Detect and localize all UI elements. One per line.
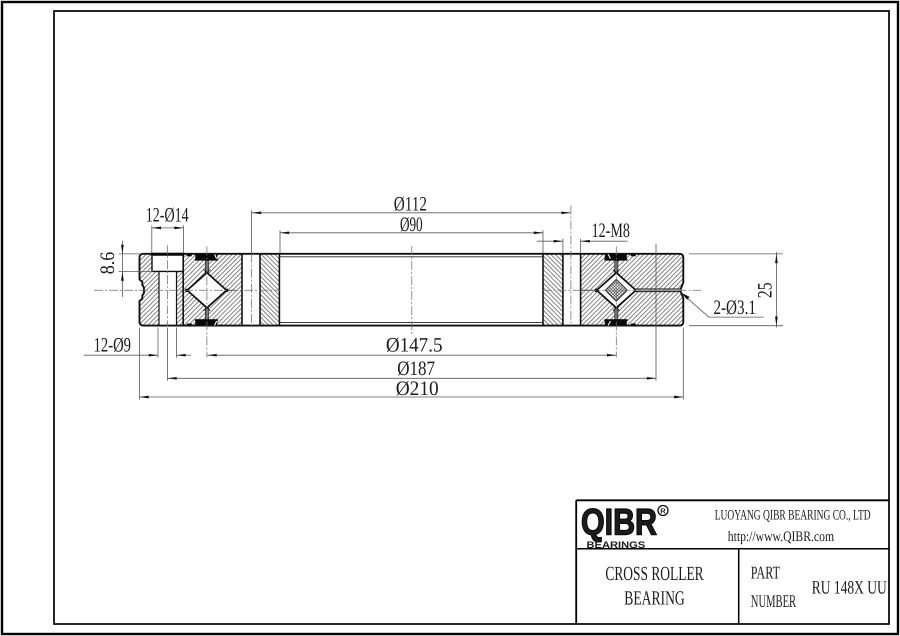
svg-text:12-M8: 12-M8 — [592, 220, 630, 242]
svg-text:2-Ø3.1: 2-Ø3.1 — [713, 297, 756, 319]
svg-text:http://www.QIBR.com: http://www.QIBR.com — [728, 529, 835, 545]
svg-text:QIBR: QIBR — [581, 502, 657, 543]
svg-text:Ø210: Ø210 — [396, 378, 439, 400]
svg-text:12-Ø14: 12-Ø14 — [146, 205, 189, 227]
svg-text:Ø147.5: Ø147.5 — [386, 334, 443, 356]
svg-text:BEARINGS: BEARINGS — [587, 540, 646, 551]
svg-text:12-Ø9: 12-Ø9 — [94, 334, 131, 356]
svg-text:BEARING: BEARING — [624, 588, 685, 610]
svg-text:RU 148X UU: RU 148X UU — [812, 578, 887, 599]
svg-text:8.6: 8.6 — [97, 252, 119, 275]
svg-text:NUMBER: NUMBER — [751, 591, 796, 611]
svg-text:Ø90: Ø90 — [400, 214, 423, 236]
svg-text:CROSS ROLLER: CROSS ROLLER — [605, 563, 704, 585]
svg-text:Ø112: Ø112 — [394, 193, 427, 215]
svg-text:PART: PART — [751, 563, 780, 583]
svg-text:25: 25 — [755, 282, 777, 298]
svg-text:R: R — [660, 507, 666, 516]
svg-text:Ø187: Ø187 — [397, 358, 435, 380]
svg-text:LUOYANG QIBR BEARING CO., LTD: LUOYANG QIBR BEARING CO., LTD — [715, 508, 871, 524]
